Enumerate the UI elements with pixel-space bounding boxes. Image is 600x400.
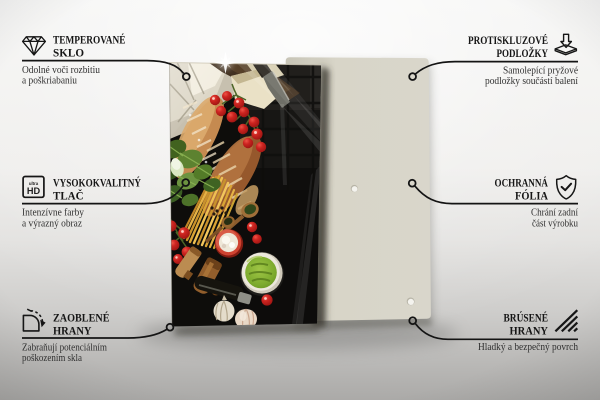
svg-text:podložky součástí balení: podložky součástí balení: [485, 76, 578, 87]
svg-text:a poškriabaniu: a poškriabaniu: [22, 75, 77, 86]
svg-text:OCHRANNÁ: OCHRANNÁ: [495, 175, 549, 189]
svg-text:FÓLIA: FÓLIA: [515, 188, 549, 202]
svg-text:ZAOBLENÉ: ZAOBLENÉ: [53, 310, 110, 324]
svg-text:Intenzívne farby: Intenzívne farby: [22, 208, 85, 219]
svg-text:TLAČ: TLAČ: [53, 188, 84, 202]
svg-text:Odolné voči rozbitiu: Odolné voči rozbitiu: [22, 65, 100, 76]
svg-text:PROTISKLUZOVÉ: PROTISKLUZOVÉ: [468, 33, 548, 47]
svg-text:Zabraňují potenciálním: Zabraňují potenciálním: [22, 343, 107, 354]
svg-text:SKLO: SKLO: [53, 47, 84, 60]
svg-text:PODLOŽKY: PODLOŽKY: [497, 46, 549, 60]
svg-text:HRANY: HRANY: [510, 324, 549, 337]
svg-text:VYSOKOKVALITNÝ: VYSOKOKVALITNÝ: [53, 175, 141, 189]
svg-text:Samolepící pryžové: Samolepící pryžové: [503, 65, 578, 76]
svg-text:poškozením skla: poškozením skla: [22, 353, 82, 364]
svg-text:a výrazný obraz: a výrazný obraz: [22, 218, 82, 229]
svg-text:Chrání zadní: Chrání zadní: [531, 208, 578, 219]
svg-text:Hladký a bezpečný povrch: Hladký a bezpečný povrch: [478, 342, 578, 353]
svg-text:TEMPEROVANÉ: TEMPEROVANÉ: [53, 33, 126, 47]
svg-text:BRÚSENÉ: BRÚSENÉ: [504, 310, 549, 324]
svg-text:HRANY: HRANY: [53, 324, 92, 337]
svg-text:HD: HD: [27, 186, 41, 196]
svg-text:část výrobku: část výrobku: [532, 218, 578, 229]
